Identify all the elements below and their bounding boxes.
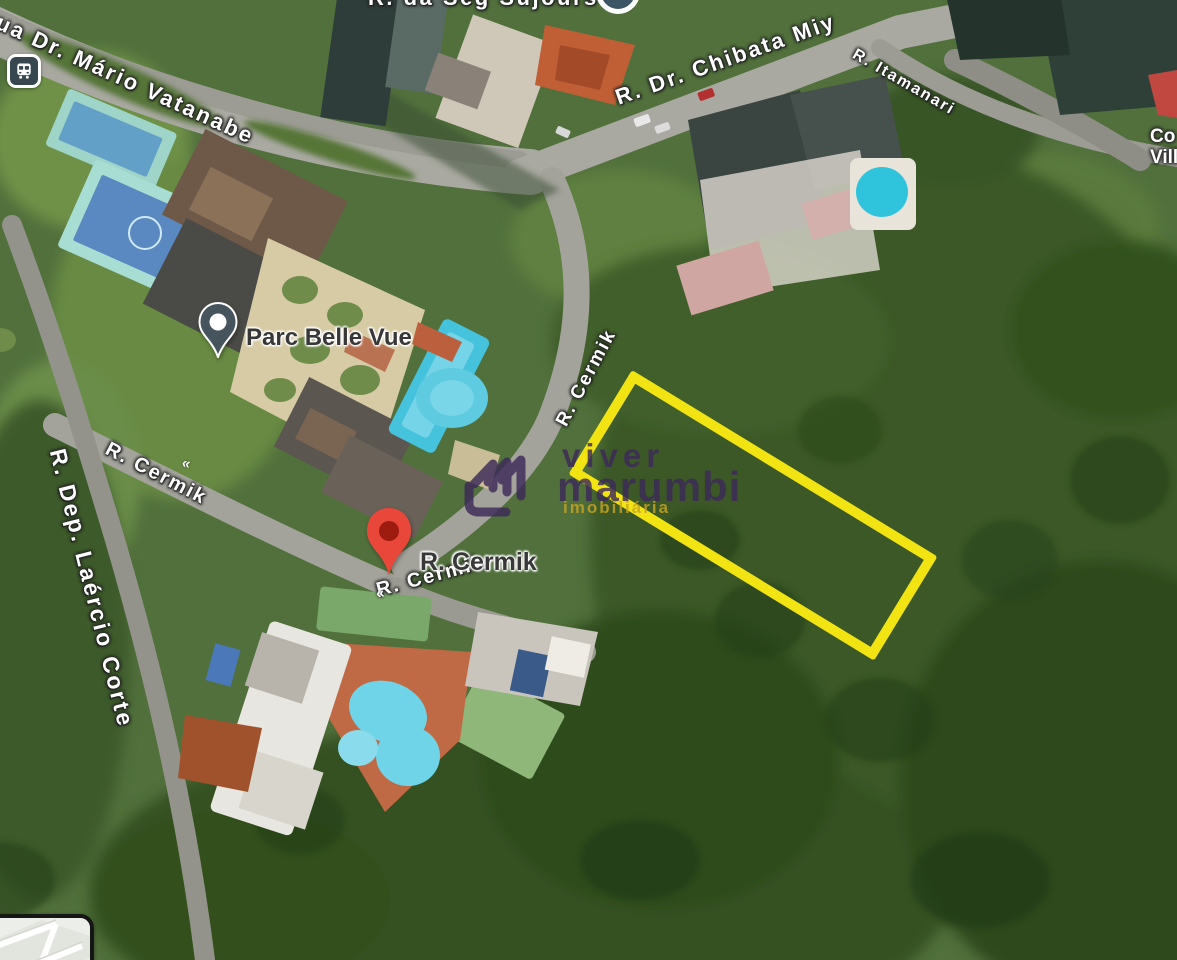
street-label-clipped-top: R. da Seg Sujours [368, 0, 599, 11]
poi-label-clipped-right: Co Vill [1150, 126, 1177, 168]
watermark-house-icon [460, 434, 556, 518]
bus-icon[interactable] [7, 54, 41, 88]
map-viewport[interactable]: Rua Dr. Mário Vatanabe R. Dr. Chibata Mi… [0, 0, 1177, 960]
watermark-tagline: imobiliária [563, 498, 670, 518]
bus-glyph-icon [14, 61, 34, 81]
minimap-inset[interactable] [0, 914, 94, 960]
minimap-content [0, 918, 90, 960]
red-marker-icon[interactable] [364, 506, 414, 588]
poi-label-clipped-right-line2: Vill [1150, 147, 1177, 168]
place-pin-icon[interactable] [198, 302, 238, 358]
poi-label-pin-cermik[interactable]: R. Cermik [420, 548, 537, 577]
poi-label-clipped-right-line1: Co [1150, 126, 1177, 147]
watermark: viver marumbi imobiliária [460, 434, 556, 523]
poi-label-parc-belle-vue[interactable]: Parc Belle Vue [246, 324, 412, 352]
